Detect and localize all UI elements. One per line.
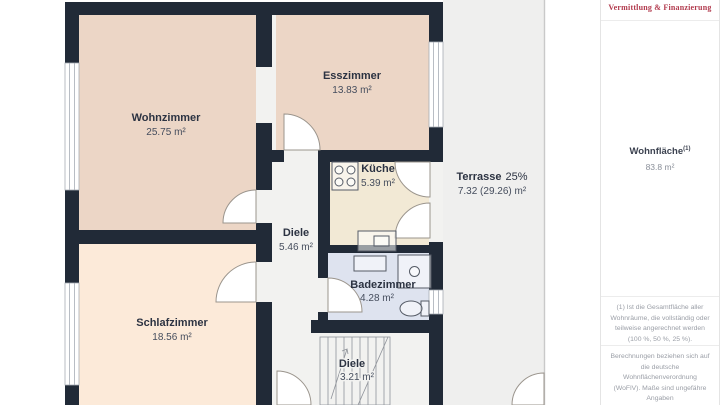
terrasse-area — [443, 0, 544, 405]
room-area-kueche: 5.39 m² — [361, 178, 396, 189]
wohnflaeche-section: Wohnfläche(1) 83.8 m² — [601, 20, 719, 296]
room-area-diele-og: 5.46 m² — [279, 242, 314, 253]
window-badezimmer — [429, 290, 443, 314]
room-area-terrasse: 7.32 (29.26) m² — [458, 186, 527, 197]
window-esszimmer — [429, 42, 443, 127]
wohnflaeche-value: 83.8 m² — [646, 162, 675, 172]
wohnflaeche-label: Wohnfläche(1) — [629, 146, 690, 157]
room-label-kueche: Küche — [361, 163, 395, 175]
footnote-2: Berechnungen beziehen sich auf die deuts… — [601, 345, 719, 405]
room-area-diele-unten: 3.21 m² — [340, 372, 375, 383]
wohnflaeche-footnote-marker: (1) — [683, 146, 690, 152]
window-wohnzimmer — [65, 63, 79, 190]
room-label-schlafzimmer: Schlafzimmer — [136, 317, 208, 329]
window-schlafzimmer — [65, 283, 79, 385]
stove-icon — [332, 162, 358, 190]
bath-sink-icon — [354, 256, 386, 271]
kitchen-sink-icon — [358, 231, 396, 251]
room-label-wohnzimmer: Wohnzimmer — [132, 112, 202, 124]
room-label-badezimmer: Badezimmer — [350, 279, 416, 291]
room-area-wohnzimmer: 25.75 m² — [146, 127, 186, 138]
room-area-esszimmer: 13.83 m² — [332, 85, 372, 96]
room-label-diele-og: Diele — [283, 227, 309, 239]
room-label-esszimmer: Esszimmer — [323, 70, 382, 82]
floor-plan: Wohnzimmer 25.75 m² Esszimmer 13.83 m² K… — [0, 0, 600, 405]
brand-tagline: Vermittlung & Finanzierung — [601, 0, 719, 20]
footnote-1: (1) Ist die Gesamtfläche aller Wohnräume… — [601, 296, 719, 345]
room-label-terrasse: Terrasse25% — [456, 171, 527, 183]
room-area-badezimmer: 4.28 m² — [360, 293, 395, 304]
info-panel: Vermittlung & Finanzierung Wohnfläche(1)… — [600, 0, 720, 405]
floor-plan-svg: Wohnzimmer 25.75 m² Esszimmer 13.83 m² K… — [0, 0, 600, 405]
toilet-icon — [400, 301, 429, 316]
room-area-schlafzimmer: 18.56 m² — [152, 332, 192, 343]
room-label-diele-unten: Diele — [339, 358, 365, 370]
